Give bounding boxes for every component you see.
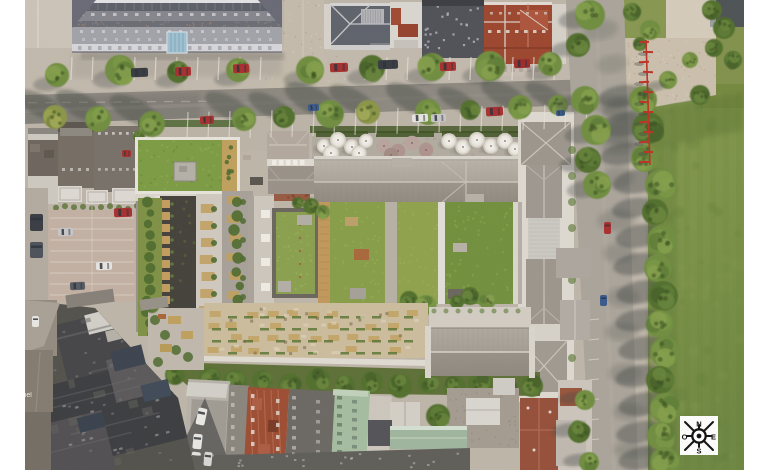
svg-text:O: O [682, 433, 688, 442]
svg-text:E: E [711, 433, 716, 442]
svg-text:S: S [696, 447, 701, 456]
svg-text:N: N [696, 420, 701, 429]
